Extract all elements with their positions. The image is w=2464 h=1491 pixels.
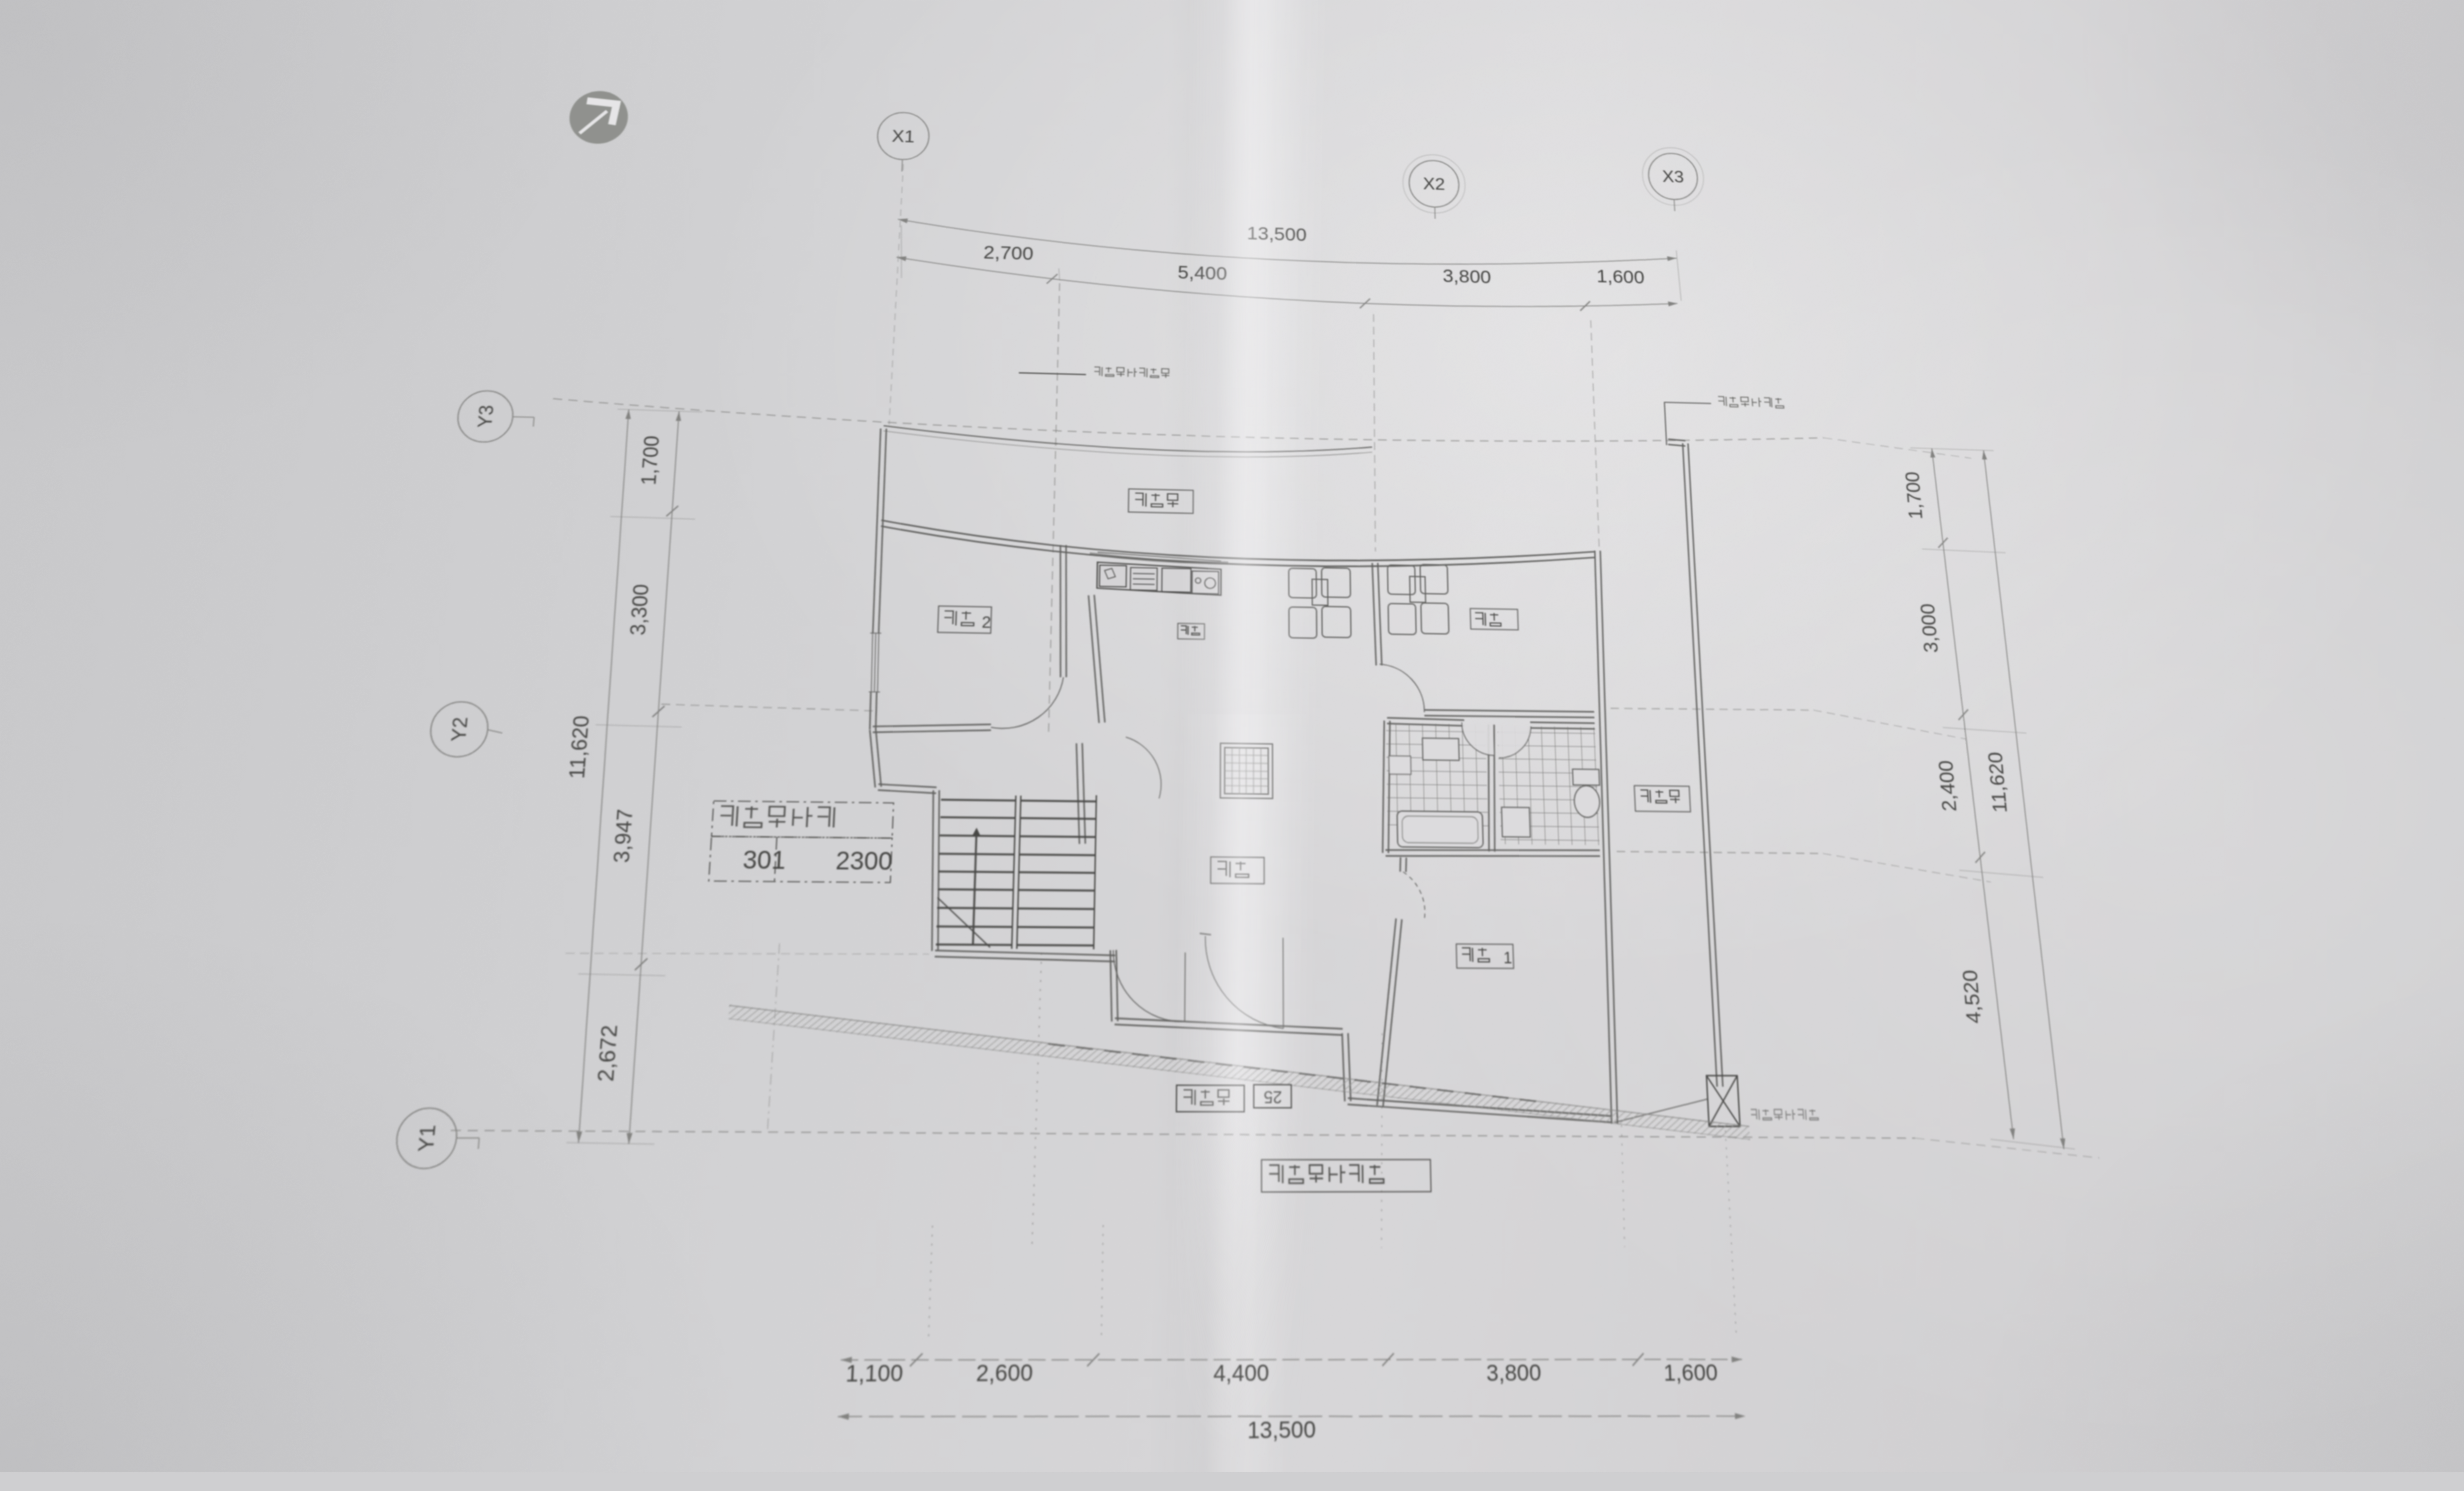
svg-text:2,672: 2,672 bbox=[593, 1025, 622, 1082]
svg-text:Y3: Y3 bbox=[473, 405, 498, 428]
svg-text:3,300: 3,300 bbox=[626, 584, 653, 636]
svg-text:1: 1 bbox=[1503, 949, 1512, 967]
svg-text:1,700: 1,700 bbox=[637, 436, 664, 486]
svg-text:2,600: 2,600 bbox=[976, 1359, 1033, 1387]
svg-text:2300: 2300 bbox=[835, 847, 893, 876]
svg-text:X2: X2 bbox=[1423, 174, 1445, 194]
svg-text:2,700: 2,700 bbox=[983, 242, 1034, 264]
svg-text:1,100: 1,100 bbox=[845, 1359, 904, 1387]
svg-text:1,600: 1,600 bbox=[1596, 266, 1645, 288]
svg-text:3,947: 3,947 bbox=[609, 809, 638, 863]
svg-text:301: 301 bbox=[742, 846, 787, 875]
svg-text:X1: X1 bbox=[891, 126, 915, 146]
svg-text:3,800: 3,800 bbox=[1442, 266, 1491, 287]
svg-text:11,620: 11,620 bbox=[565, 715, 594, 779]
svg-text:Y1: Y1 bbox=[413, 1125, 440, 1152]
svg-text:2,400: 2,400 bbox=[1935, 760, 1961, 812]
svg-text:3,000: 3,000 bbox=[1916, 604, 1942, 653]
svg-text:11,620: 11,620 bbox=[1984, 752, 2011, 813]
svg-text:1,700: 1,700 bbox=[1902, 472, 1927, 520]
svg-text:Y2: Y2 bbox=[446, 717, 472, 742]
svg-text:2: 2 bbox=[982, 613, 992, 632]
svg-text:1,600: 1,600 bbox=[1663, 1359, 1719, 1386]
svg-text:4,520: 4,520 bbox=[1958, 970, 1985, 1023]
svg-text:X3: X3 bbox=[1662, 167, 1684, 186]
svg-text:3,800: 3,800 bbox=[1486, 1359, 1542, 1386]
